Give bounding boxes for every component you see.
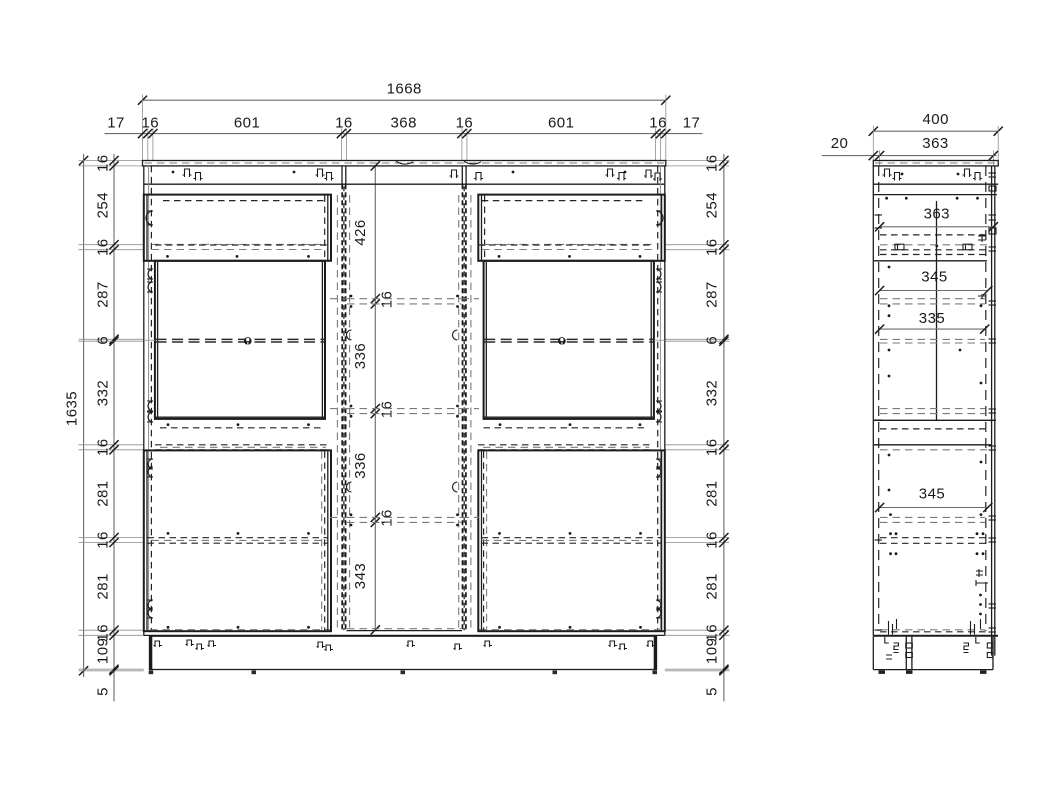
svg-text:345: 345: [921, 269, 947, 286]
svg-text:16: 16: [142, 115, 160, 132]
svg-text:281: 281: [704, 573, 721, 599]
svg-text:16: 16: [379, 291, 396, 309]
svg-text:254: 254: [704, 192, 721, 218]
svg-text:336: 336: [352, 343, 369, 369]
svg-text:6: 6: [95, 336, 112, 345]
svg-text:1668: 1668: [387, 80, 422, 97]
svg-text:16: 16: [95, 154, 112, 172]
svg-text:6: 6: [704, 336, 721, 345]
svg-text:109: 109: [704, 638, 721, 664]
svg-text:16: 16: [704, 238, 721, 256]
svg-text:109: 109: [95, 638, 112, 664]
svg-text:368: 368: [391, 115, 417, 132]
svg-text:345: 345: [919, 486, 945, 503]
svg-text:5: 5: [95, 687, 112, 696]
svg-text:287: 287: [95, 281, 112, 307]
svg-text:5: 5: [704, 687, 721, 696]
svg-text:16: 16: [704, 439, 721, 457]
svg-text:16: 16: [704, 531, 721, 549]
svg-text:16: 16: [379, 509, 396, 527]
svg-text:363: 363: [922, 135, 948, 152]
svg-text:16: 16: [95, 238, 112, 256]
svg-text:363: 363: [924, 206, 950, 223]
svg-text:287: 287: [704, 281, 721, 307]
svg-text:601: 601: [234, 115, 260, 132]
svg-text:332: 332: [704, 380, 721, 406]
svg-text:16: 16: [704, 154, 721, 172]
svg-text:17: 17: [683, 115, 701, 132]
svg-text:16: 16: [95, 531, 112, 549]
svg-text:601: 601: [548, 115, 574, 132]
svg-text:332: 332: [95, 380, 112, 406]
svg-text:1635: 1635: [63, 391, 80, 426]
svg-text:16: 16: [379, 401, 396, 419]
svg-text:16: 16: [456, 115, 474, 132]
svg-text:281: 281: [704, 480, 721, 506]
svg-text:336: 336: [352, 452, 369, 478]
svg-text:281: 281: [95, 480, 112, 506]
svg-text:426: 426: [352, 219, 369, 245]
svg-text:254: 254: [95, 192, 112, 218]
svg-text:281: 281: [95, 573, 112, 599]
svg-text:343: 343: [352, 563, 369, 589]
svg-text:16: 16: [95, 439, 112, 457]
svg-text:400: 400: [923, 111, 949, 128]
svg-text:16: 16: [335, 115, 353, 132]
svg-text:17: 17: [107, 115, 125, 132]
svg-text:20: 20: [831, 135, 849, 152]
svg-text:335: 335: [919, 310, 945, 327]
svg-text:16: 16: [649, 115, 667, 132]
